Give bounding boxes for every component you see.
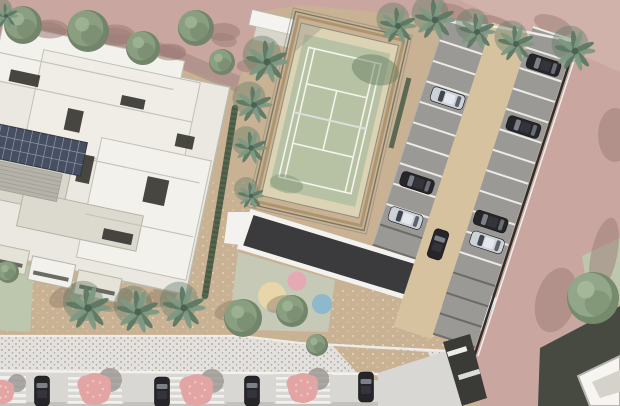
tree-canopy-highlight xyxy=(185,16,197,28)
street-car xyxy=(155,377,170,406)
blossom-speckle xyxy=(194,397,196,399)
site-plan-canvas xyxy=(0,0,620,406)
palm-crown xyxy=(180,304,187,311)
palm-crown xyxy=(572,48,579,55)
blossom-speckle xyxy=(201,383,203,385)
tree-canopy-highlight xyxy=(1,265,8,272)
blossom-speckle xyxy=(99,394,101,396)
blossom-speckle xyxy=(189,392,191,394)
palm-crown xyxy=(432,17,439,24)
blossom-speckle xyxy=(306,393,308,395)
play-circle xyxy=(312,294,332,314)
blossom-speckle xyxy=(87,384,89,386)
tree-canopy-highlight xyxy=(282,300,293,311)
round-tree xyxy=(67,10,109,52)
play-circle xyxy=(288,272,307,291)
big-tree xyxy=(567,272,619,324)
blossom-speckle xyxy=(5,386,7,388)
car-roof xyxy=(361,386,371,394)
car-roof xyxy=(157,391,167,399)
street-car xyxy=(245,376,260,406)
olive-tree xyxy=(276,295,308,327)
palm-crown xyxy=(263,58,270,65)
blossom-speckle xyxy=(7,391,9,393)
blossom-speckle xyxy=(295,390,297,392)
car-windshield xyxy=(37,383,48,388)
palm-crown xyxy=(4,14,8,18)
palm-crown xyxy=(84,304,91,311)
site-plan-render xyxy=(0,0,620,406)
car-windshield xyxy=(247,383,258,388)
pink-canopy xyxy=(290,387,305,402)
palm-crown xyxy=(513,41,519,47)
blossom-speckle xyxy=(102,388,104,390)
round-tree xyxy=(178,10,214,46)
tree-canopy-highlight xyxy=(214,53,223,62)
blossom-speckle xyxy=(92,380,94,382)
palm-crown xyxy=(474,29,480,35)
pink-canopy xyxy=(81,388,97,404)
car-roof xyxy=(247,390,257,398)
car-windshield xyxy=(157,384,168,389)
palm-crown xyxy=(249,194,253,198)
pink-canopy xyxy=(197,389,211,403)
tree-canopy-highlight xyxy=(75,17,89,31)
blossom-speckle xyxy=(295,384,297,386)
palm-crown xyxy=(134,308,141,315)
car-roof xyxy=(37,390,47,398)
blossom-speckle xyxy=(306,381,308,383)
blossom-speckle xyxy=(5,395,7,397)
olive-tree xyxy=(306,334,328,356)
blossom-speckle xyxy=(194,381,196,383)
palm-crown xyxy=(251,102,257,108)
street-car xyxy=(359,372,374,402)
street-car xyxy=(35,376,50,406)
blossom-speckle xyxy=(92,396,94,398)
round-tree xyxy=(209,49,235,75)
tree-canopy-highlight xyxy=(231,305,244,318)
pink-canopy xyxy=(95,388,109,402)
tree-canopy-highlight xyxy=(577,281,595,299)
tree-canopy-highlight xyxy=(310,338,317,345)
blossom-speckle xyxy=(300,394,302,396)
car-windshield xyxy=(361,379,372,384)
blossom-speckle xyxy=(300,379,302,381)
pink-canopy xyxy=(183,389,199,405)
blossom-speckle xyxy=(204,389,206,391)
palm-crown xyxy=(395,23,401,29)
olive-tree xyxy=(224,299,262,337)
big-tree-right xyxy=(567,272,619,324)
tree-canopy-highlight xyxy=(132,37,144,49)
blossom-speckle xyxy=(87,391,89,393)
blossom-speckle xyxy=(189,385,191,387)
blossom-speckle xyxy=(201,395,203,397)
blossom-speckle xyxy=(99,382,101,384)
palm-crown xyxy=(248,145,253,150)
pink-canopy xyxy=(303,387,317,401)
blossom-speckle xyxy=(309,387,311,389)
round-tree xyxy=(126,31,160,65)
